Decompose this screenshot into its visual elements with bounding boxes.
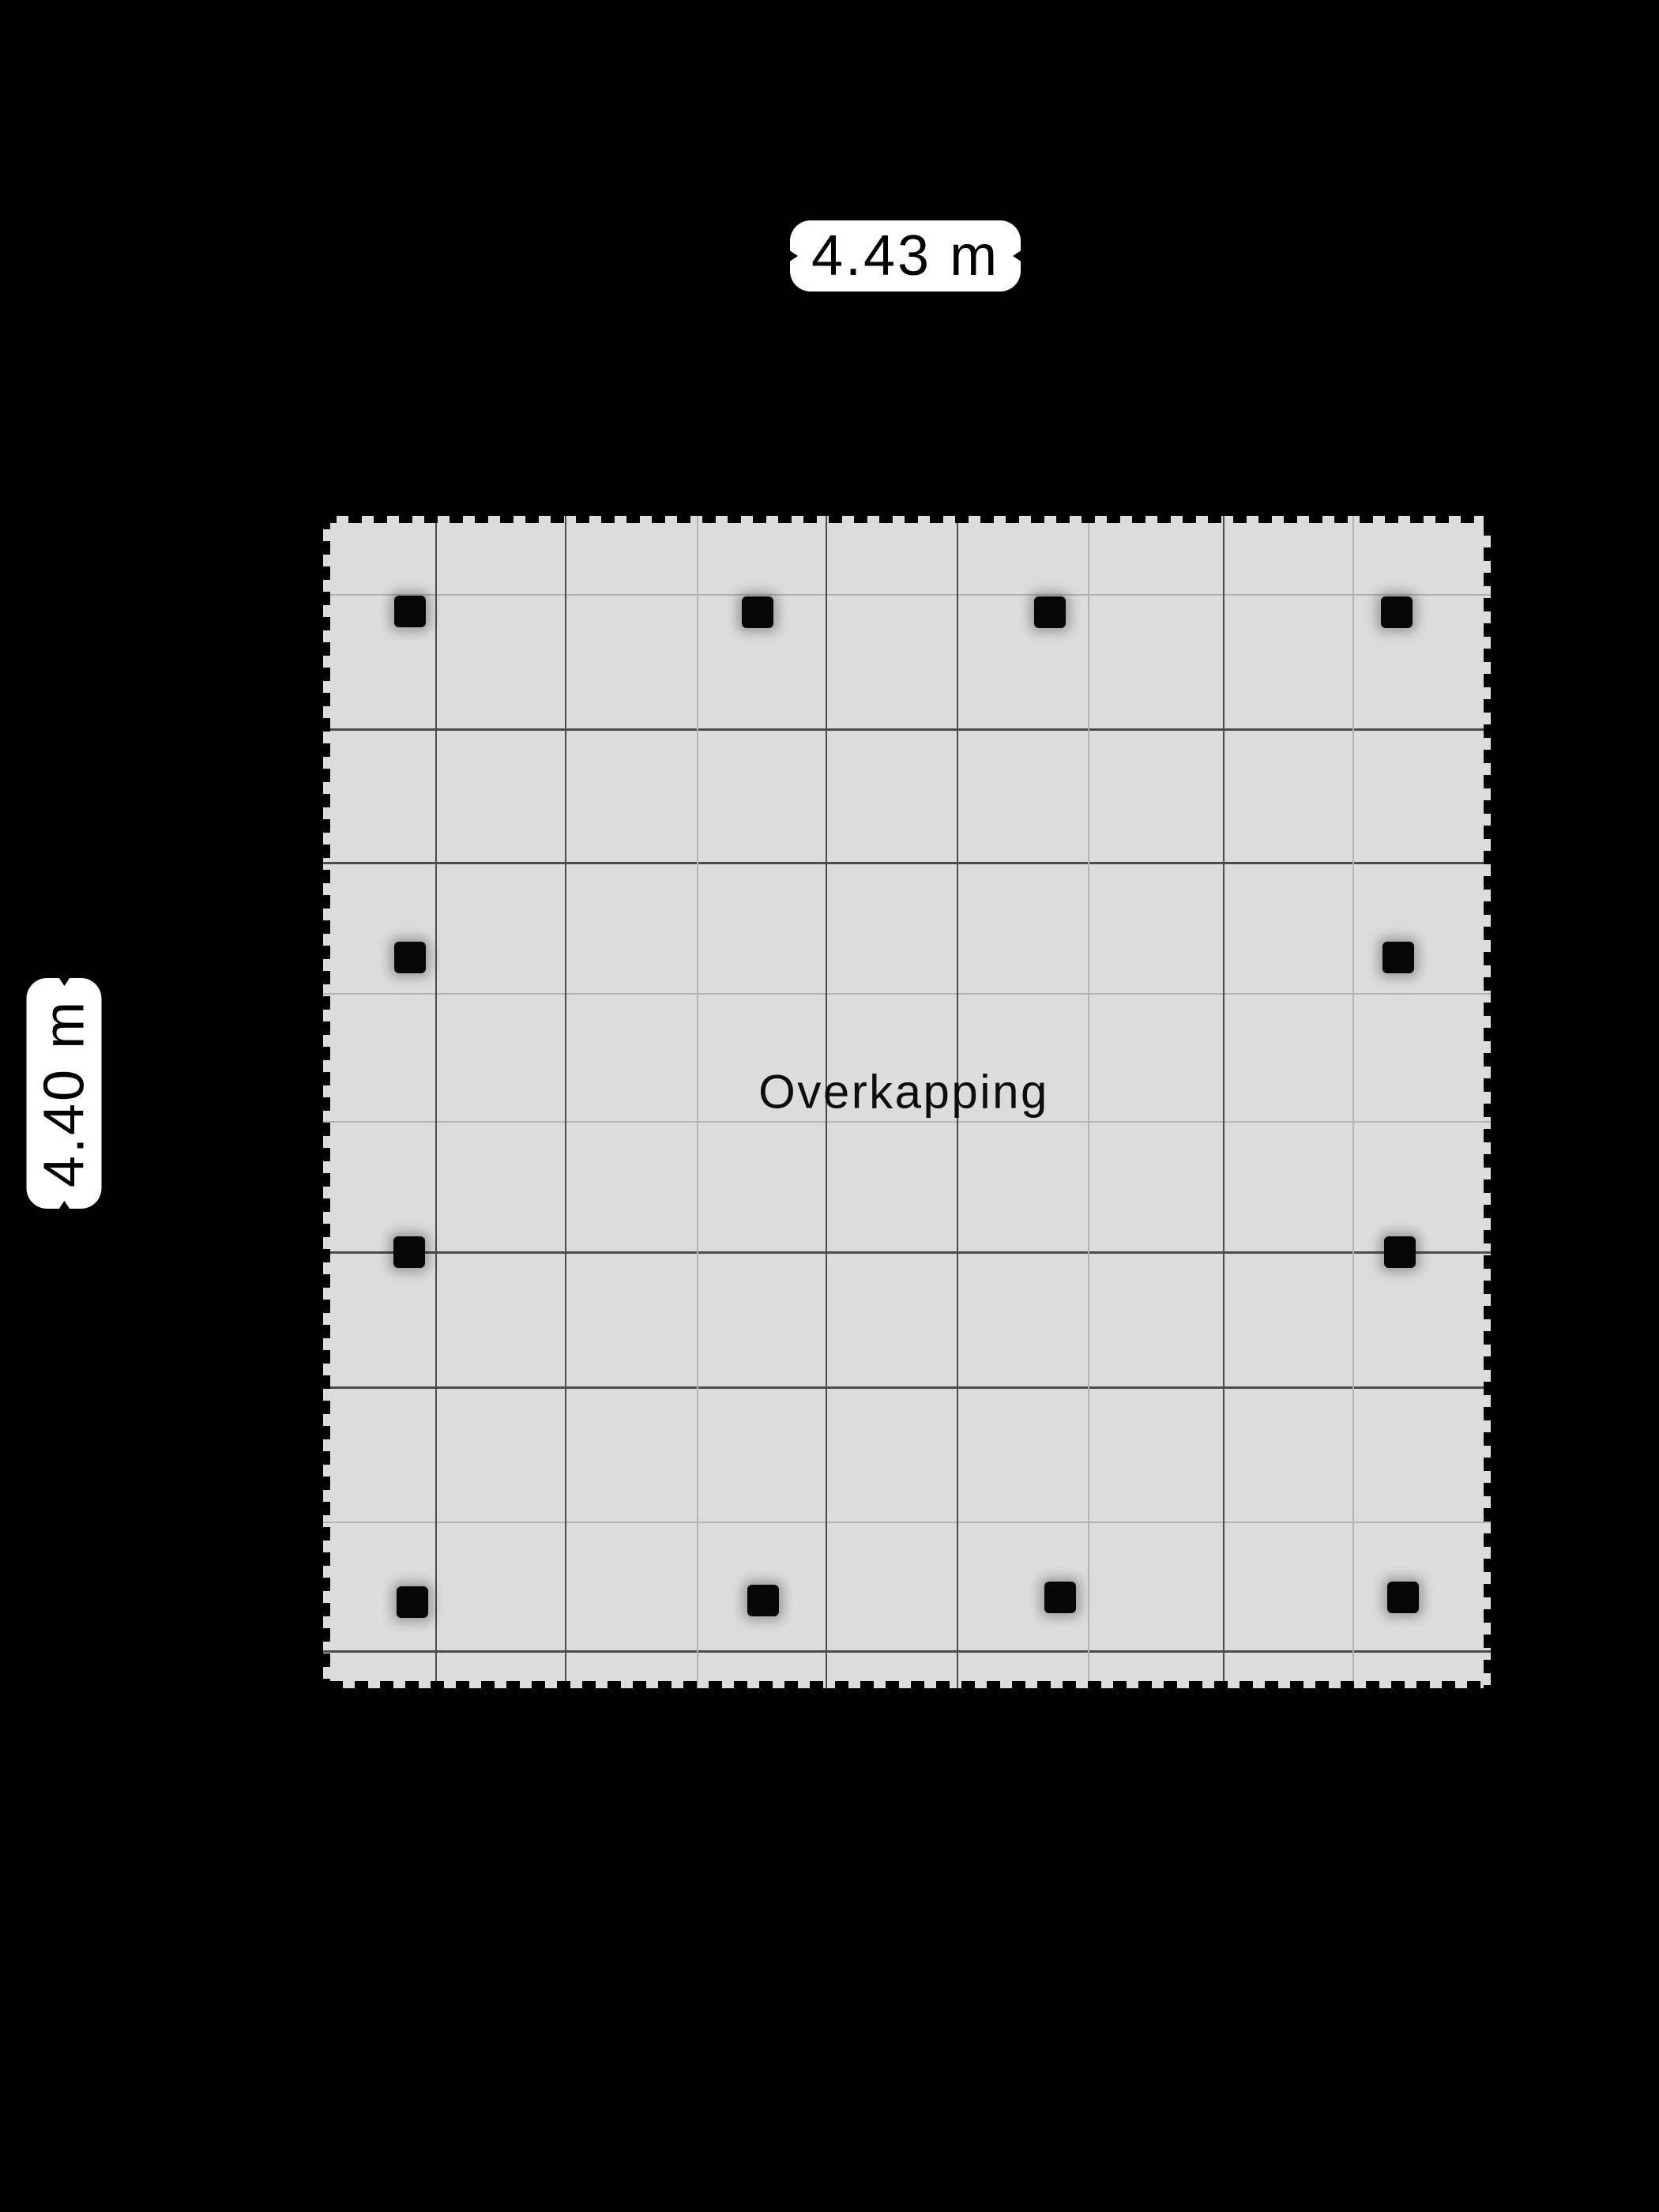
- floor-plan[interactable]: Overkapping: [323, 516, 1491, 1688]
- canvas-background: { "colors": { "background": "#000000", "…: [0, 0, 1659, 2212]
- support-post[interactable]: [1384, 1236, 1416, 1268]
- grid-line-vertical: [1088, 516, 1089, 1688]
- support-post[interactable]: [1387, 1582, 1419, 1613]
- support-post[interactable]: [1034, 596, 1066, 628]
- support-post[interactable]: [742, 596, 773, 628]
- support-post[interactable]: [1381, 596, 1413, 628]
- plan-border-left: [323, 516, 330, 1688]
- support-post[interactable]: [747, 1585, 779, 1616]
- dimension-arrow-icon: [58, 1201, 70, 1210]
- dimension-arrow-icon: [58, 976, 70, 986]
- grid-line-horizontal: [323, 594, 1491, 596]
- grid-line-vertical: [435, 516, 437, 1688]
- grid-line-horizontal: [323, 862, 1491, 864]
- room-label[interactable]: Overkapping: [758, 1065, 1049, 1119]
- dimension-width-label: 4.43 m: [811, 224, 999, 288]
- support-post[interactable]: [393, 1236, 425, 1268]
- grid-line-horizontal: [323, 1650, 1491, 1653]
- grid-line-horizontal: [323, 1251, 1491, 1254]
- support-post[interactable]: [394, 942, 426, 973]
- grid-line-horizontal: [323, 1121, 1491, 1123]
- grid-line-horizontal: [323, 1522, 1491, 1523]
- grid-line-vertical: [1223, 516, 1224, 1688]
- grid-line-vertical: [565, 516, 566, 1688]
- dimension-height-pill: 4.40 m: [27, 978, 102, 1209]
- dimension-arrow-icon: [1013, 250, 1022, 262]
- plan-border-top: [323, 516, 1491, 523]
- dimension-height-label: 4.40 m: [32, 999, 96, 1187]
- dimension-width-pill: 4.43 m: [790, 220, 1021, 292]
- grid-line-horizontal: [323, 1386, 1491, 1389]
- dimension-arrow-icon: [788, 250, 798, 262]
- support-post[interactable]: [394, 596, 426, 627]
- plan-border-bottom: [323, 1681, 1491, 1688]
- support-post[interactable]: [1044, 1582, 1076, 1613]
- grid-line-vertical: [697, 516, 698, 1688]
- grid-line-horizontal: [323, 728, 1491, 731]
- grid-line-horizontal: [323, 993, 1491, 995]
- support-post[interactable]: [397, 1586, 428, 1618]
- plan-border-right: [1484, 516, 1491, 1688]
- grid-line-vertical: [1352, 516, 1354, 1688]
- support-post[interactable]: [1382, 942, 1414, 973]
